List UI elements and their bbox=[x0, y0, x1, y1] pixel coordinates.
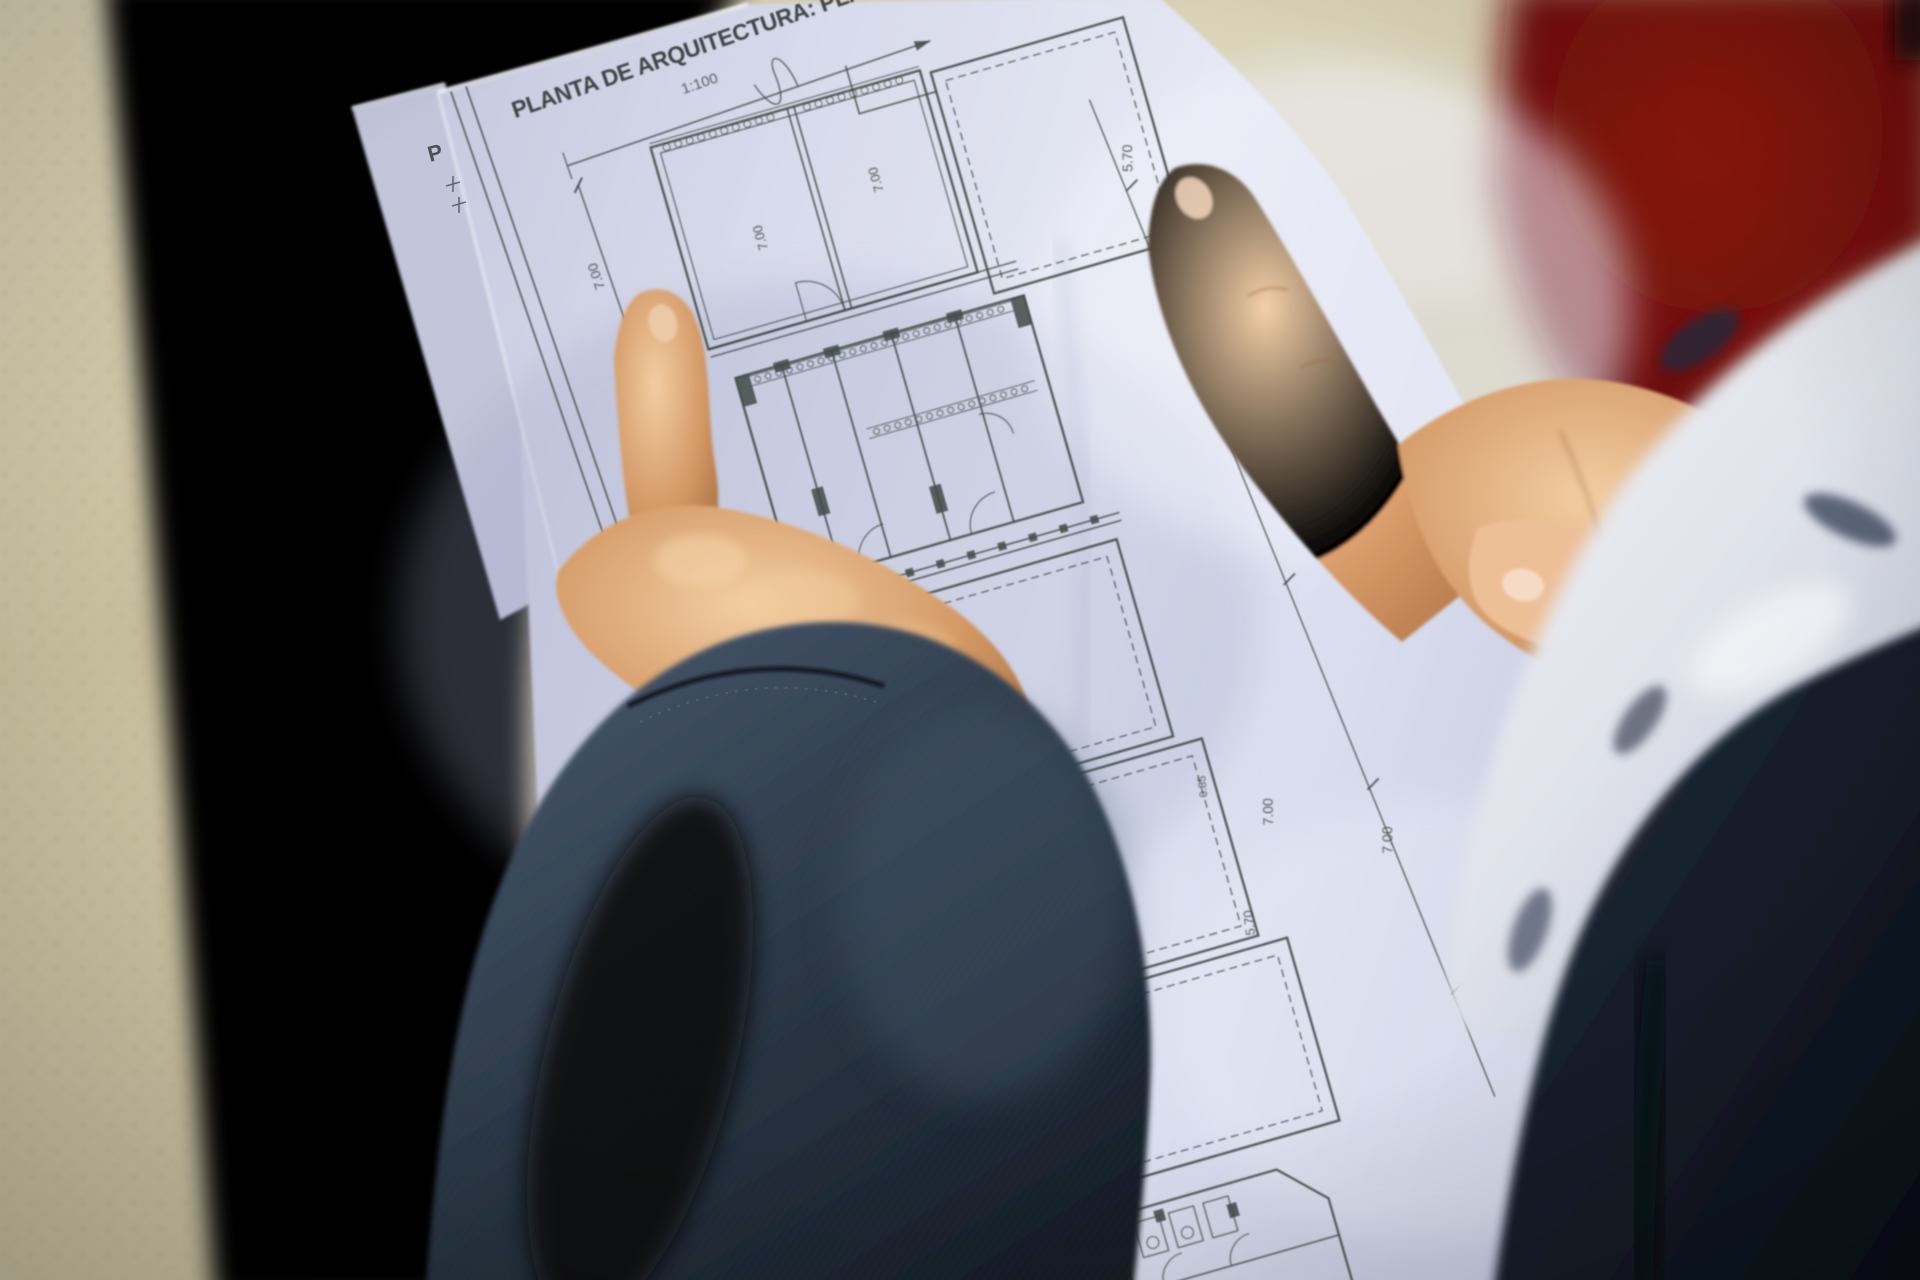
photo-scene: P PLANTA DE ARQUITECTURA: PLANTA BAJA 1:… bbox=[0, 0, 1920, 1280]
vignette bbox=[0, 0, 1920, 1280]
scene-canvas: P PLANTA DE ARQUITECTURA: PLANTA BAJA 1:… bbox=[0, 0, 1920, 1280]
